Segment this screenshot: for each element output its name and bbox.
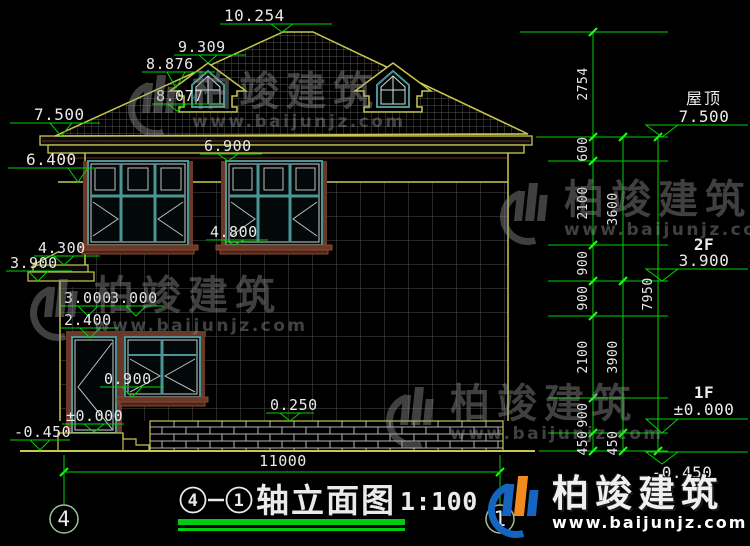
axis-number: 4 — [57, 507, 70, 531]
dim-text: 900 — [576, 251, 591, 276]
elevation-drawing: 2754 600 2100 900 900 2100 900 450 3600 … — [0, 0, 750, 546]
dim-text: 3900 — [606, 340, 621, 373]
brand-url: www.baijunjz.com — [552, 515, 747, 531]
level-text: 7.500 — [34, 105, 85, 124]
dim-text: 450 — [576, 431, 591, 456]
title-text: 轴立面图 — [256, 481, 396, 520]
dim-text: 900 — [576, 403, 591, 428]
dim-text: 600 — [576, 137, 591, 162]
eave-cornice — [40, 136, 532, 153]
floor-level-roof: 屋顶 7.500 — [646, 89, 748, 137]
dimension-chain-inner: 2754 600 2100 900 900 2100 900 450 — [576, 67, 591, 455]
cad-elevation-canvas: 2754 600 2100 900 900 2100 900 450 3600 … — [0, 0, 750, 546]
dim-text: 3600 — [606, 192, 621, 225]
level-text: 3.000 — [64, 289, 112, 307]
dim-text: 2754 — [576, 67, 591, 100]
level-text: 6.400 — [26, 150, 77, 169]
level-text: 2.400 — [64, 311, 112, 329]
title-bubble: 4 — [188, 491, 199, 511]
floor-value: 3.900 — [679, 251, 730, 270]
hip-roof — [55, 32, 528, 136]
baijun-brand-footer: 柏竣建筑 www.baijunjz.com — [488, 474, 747, 532]
level-text: 3.900 — [10, 254, 58, 272]
floor-value: ±0.000 — [674, 400, 735, 419]
level-text: 4.800 — [210, 223, 258, 241]
level-marker: 10.254 — [220, 6, 332, 32]
level-text: -0.450 — [14, 423, 71, 441]
level-text: 8.077 — [156, 87, 204, 105]
dimension-chain-mid: 3600 3900 450 — [606, 192, 621, 455]
floor-level-1f: 1F ±0.000 — [646, 383, 748, 433]
brand-name: 柏竣建筑 — [552, 475, 747, 512]
drawing-title: 4 1 轴立面图 1:100 — [178, 481, 478, 531]
dim-text: 2100 — [576, 340, 591, 373]
level-text: 0.250 — [270, 396, 318, 414]
second-floor-window — [78, 161, 198, 254]
level-text: 9.309 — [178, 38, 226, 56]
floor-label: 屋顶 — [686, 89, 722, 108]
level-text: 0.900 — [104, 370, 152, 388]
floor-value: 7.500 — [679, 107, 730, 126]
title-scale: 1:100 — [400, 487, 478, 516]
floor-level-2f: 2F 3.900 — [646, 235, 748, 281]
title-bubble: 1 — [234, 491, 245, 511]
dim-text: 11000 — [259, 452, 307, 470]
dim-text: 7950 — [641, 277, 656, 310]
level-text: 10.254 — [224, 6, 285, 25]
right-level-symbols: 屋顶 7.500 2F 3.900 1F ±0.000 -0.450 — [646, 89, 748, 482]
first-floor-window — [117, 331, 208, 406]
dim-text: 2100 — [576, 186, 591, 219]
level-text: ±0.000 — [66, 407, 123, 425]
level-text: 3.000 — [110, 289, 158, 307]
level-text: 8.876 — [146, 55, 194, 73]
dim-text: 450 — [606, 431, 621, 456]
baijun-logo-icon — [488, 474, 544, 532]
dimension-chain-outer: 7950 — [641, 277, 656, 310]
dim-text: 900 — [576, 286, 591, 311]
extension-lines — [520, 32, 668, 451]
level-text: 6.900 — [204, 137, 252, 155]
